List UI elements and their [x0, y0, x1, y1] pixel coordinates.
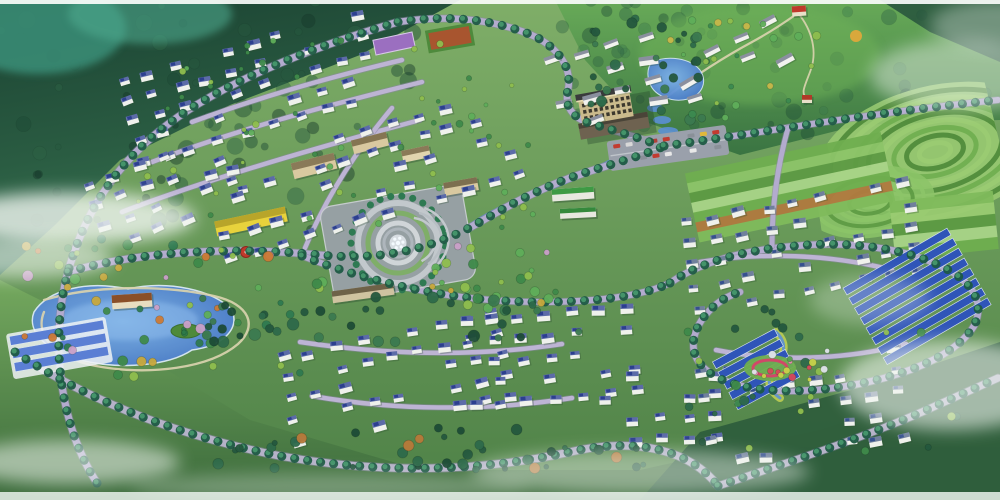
scene-canvas: Aerial masterplan rendering of mountain … — [0, 0, 1000, 500]
scene-root — [0, 0, 1000, 500]
cascade-pool-2 — [653, 116, 671, 124]
villa — [620, 303, 635, 315]
villa — [709, 388, 723, 399]
hilltop-pavilion — [792, 5, 808, 18]
villa — [626, 417, 639, 428]
villa — [495, 377, 507, 386]
villa — [599, 396, 612, 406]
lakeside-pavilion — [112, 293, 155, 312]
villa — [592, 305, 607, 317]
villa — [489, 357, 501, 367]
villa — [470, 400, 484, 411]
golden-tree-terrace-corner — [850, 30, 862, 42]
villa — [626, 371, 640, 383]
green-roof-hall-2 — [560, 207, 598, 221]
villa — [764, 206, 776, 216]
masterplan-rendering: Aerial masterplan rendering of mountain … — [0, 0, 1000, 500]
villa — [656, 433, 669, 443]
villa — [773, 289, 786, 300]
hillside-temple — [802, 95, 814, 105]
top-white-edge — [0, 0, 1000, 4]
villa — [550, 395, 563, 405]
villa — [844, 418, 856, 428]
mist-east-cluster-edge — [810, 275, 930, 325]
villa — [684, 436, 697, 446]
villa — [461, 316, 475, 327]
villa — [620, 325, 633, 336]
bottom-white-edge — [0, 492, 1000, 500]
